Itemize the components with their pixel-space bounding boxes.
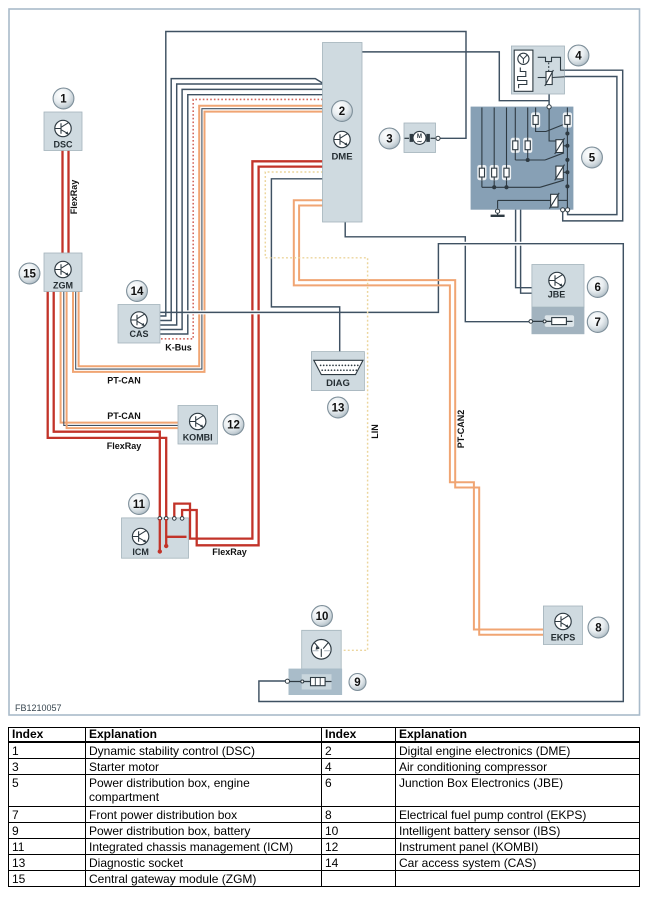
svg-text:EKPS: EKPS [551, 633, 576, 643]
svg-text:DIAG: DIAG [326, 378, 350, 389]
svg-text:FlexRay: FlexRay [107, 441, 142, 451]
svg-text:7: 7 [594, 317, 600, 329]
svg-text:6: 6 [594, 282, 600, 294]
svg-text:4: 4 [575, 51, 582, 63]
svg-text:11: 11 [133, 499, 146, 511]
svg-text:3: 3 [386, 134, 392, 146]
svg-text:JBE: JBE [548, 290, 566, 300]
svg-text:PT-CAN: PT-CAN [107, 411, 141, 421]
svg-text:DSC: DSC [53, 140, 73, 150]
svg-text:12: 12 [227, 420, 240, 432]
svg-text:ICM: ICM [132, 547, 149, 557]
svg-text:9: 9 [354, 677, 360, 689]
svg-text:1: 1 [60, 94, 67, 106]
svg-text:DME: DME [331, 152, 352, 163]
svg-text:5: 5 [589, 153, 596, 165]
svg-text:KOMBI: KOMBI [183, 433, 213, 443]
svg-text:K-Bus: K-Bus [165, 343, 192, 353]
svg-text:PT-CAN: PT-CAN [107, 376, 141, 386]
svg-text:ZGM: ZGM [53, 281, 73, 291]
svg-text:LIN: LIN [370, 424, 380, 439]
svg-text:FB1210057: FB1210057 [15, 703, 62, 713]
svg-text:2: 2 [339, 106, 345, 118]
svg-text:15: 15 [23, 269, 36, 281]
svg-text:PT-CAN2: PT-CAN2 [456, 410, 466, 449]
svg-text:14: 14 [131, 286, 144, 298]
svg-text:FlexRay: FlexRay [212, 547, 247, 557]
svg-text:8: 8 [595, 623, 602, 635]
svg-text:FlexRay: FlexRay [69, 180, 79, 215]
svg-text:13: 13 [332, 403, 345, 415]
svg-text:CAS: CAS [129, 329, 148, 339]
svg-text:∼: ∼ [417, 139, 423, 146]
svg-text:10: 10 [316, 611, 329, 623]
